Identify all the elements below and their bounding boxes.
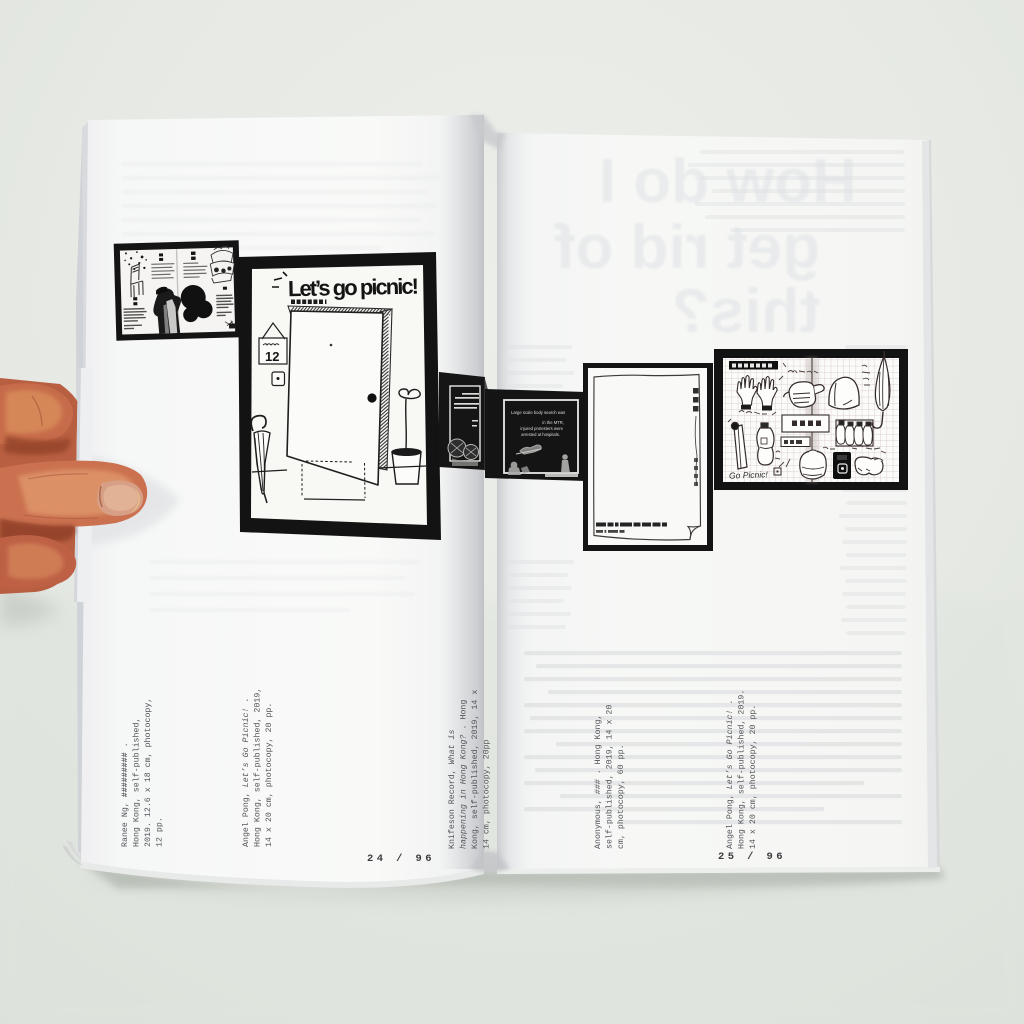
svg-text:Let’s go picnic!: Let’s go picnic! — [288, 274, 419, 302]
svg-text:24 / 96: 24 / 96 — [367, 853, 435, 865]
svg-text:self-published, 2019, 14 x 20: self-published, 2019, 14 x 20 — [605, 705, 615, 849]
svg-text:12 pp.: 12 pp. — [156, 817, 165, 847]
svg-text:Anonymous, ### . Hong Kong,: Anonymous, ### . Hong Kong, — [594, 715, 603, 849]
svg-text:Go Picnic!: Go Picnic! — [729, 469, 769, 480]
svg-text:Large scale body search was: Large scale body search was — [511, 410, 565, 415]
svg-text:Hong Kong, self-published,: Hong Kong, self-published, — [132, 718, 142, 847]
svg-text:this?: this? — [672, 277, 820, 346]
svg-text:Angel Pong, Let’s Go Picnic! .: Angel Pong, Let’s Go Picnic! . — [725, 700, 735, 849]
svg-text:arrested at hospitals.: arrested at hospitals. — [521, 432, 560, 437]
svg-text:14 x 20 cm, photocopy, 20 pp.: 14 x 20 cm, photocopy, 20 pp. — [748, 705, 758, 849]
svg-text:injured protesters were: injured protesters were — [520, 426, 563, 431]
svg-text:get rid of: get rid of — [554, 213, 820, 282]
svg-text:25 / 96: 25 / 96 — [718, 851, 786, 863]
svg-text:happening in Hong Kong? . Hong: happening in Hong Kong? . Hong — [459, 700, 469, 849]
svg-text:2019. 12.6 x 18 cm, photocopy,: 2019. 12.6 x 18 cm, photocopy, — [143, 698, 153, 847]
svg-text:Hong Kong, self-published, 201: Hong Kong, self-published, 2019, — [253, 688, 263, 847]
svg-text:Hong Kong, self-published, 201: Hong Kong, self-published, 2019. — [737, 690, 747, 849]
svg-text:Ranee Ng, ######### .: Ranee Ng, ######### . — [121, 742, 130, 847]
svg-text:12: 12 — [265, 349, 279, 364]
svg-text:Knifeson Record, What is: Knifeson Record, What is — [447, 729, 457, 849]
svg-text:14 cm, photocopy, 20pp: 14 cm, photocopy, 20pp — [482, 739, 492, 849]
svg-text:in the MTR,: in the MTR, — [542, 420, 564, 425]
svg-text:Kong, self-published, 2019, 14: Kong, self-published, 2019, 14 x — [470, 690, 480, 849]
svg-text:Angel Pong, Let’s Go Picnic! .: Angel Pong, Let’s Go Picnic! . — [241, 698, 251, 847]
svg-text:14 x 20 cm, photocopy, 20 pp.: 14 x 20 cm, photocopy, 20 pp. — [264, 703, 274, 847]
svg-text:cm, photocopy, 60 pp.: cm, photocopy, 60 pp. — [616, 744, 626, 849]
